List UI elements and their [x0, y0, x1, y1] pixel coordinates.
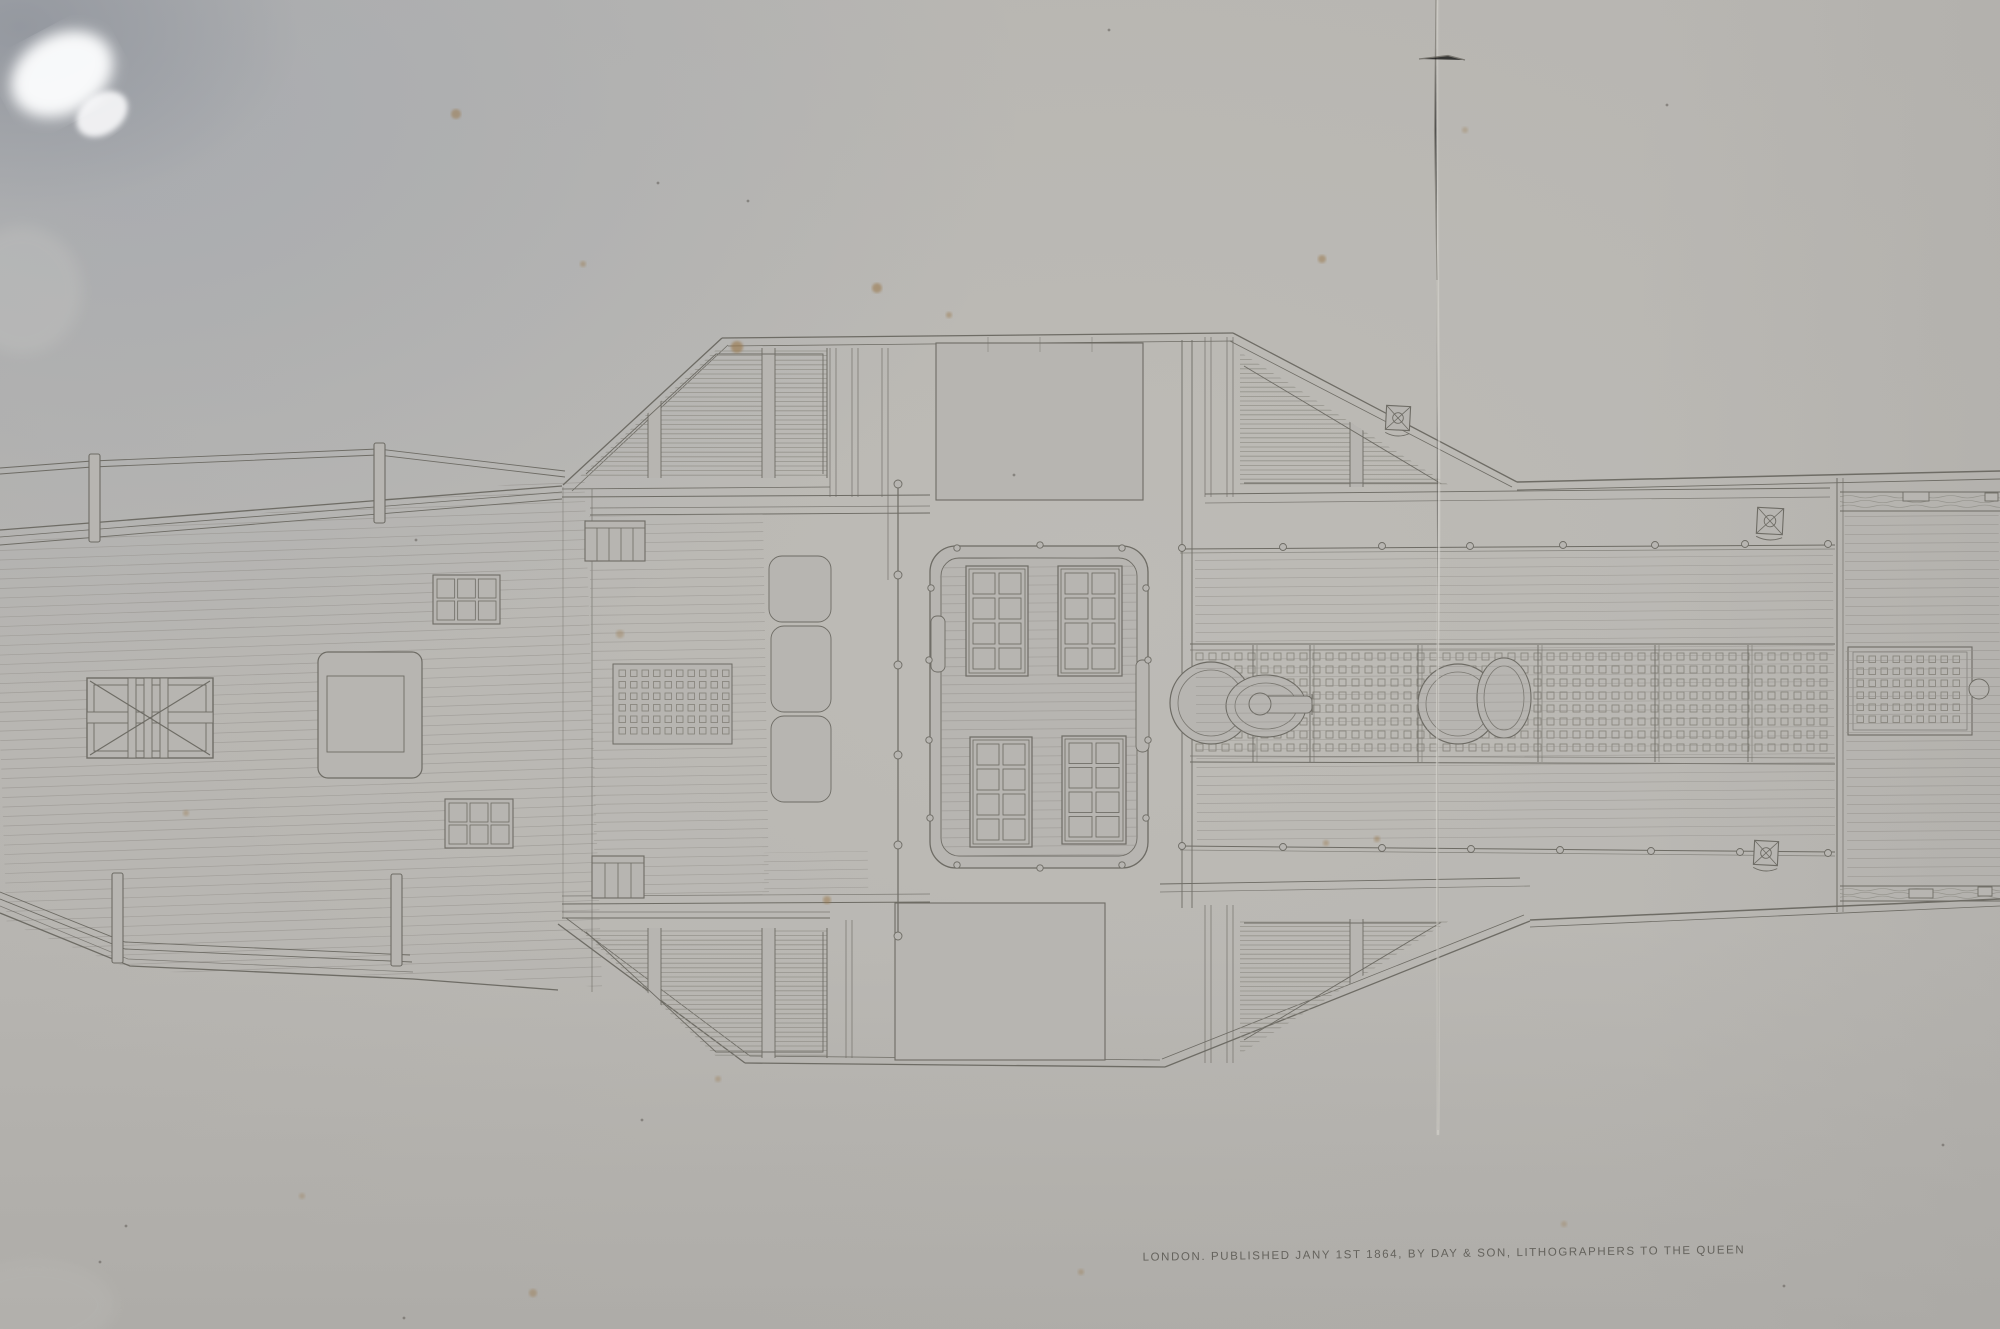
- deckhouse-roof: [318, 652, 422, 778]
- skylight-frame: [445, 799, 513, 848]
- enclosure-stanchion-ball: [1145, 657, 1151, 663]
- railing-stanchion-ball: [1557, 847, 1564, 854]
- enclosure-stanchion-ball: [927, 815, 933, 821]
- small-skylight-bottom: [445, 799, 513, 848]
- deck-locker-cover: [771, 626, 831, 712]
- dust-speck: [1013, 474, 1016, 477]
- bulwark-cleat: [1978, 887, 1992, 896]
- photo-of-lithograph: LONDON. PUBLISHED JANY 1ST 1864, BY DAY …: [0, 0, 2000, 1329]
- enclosure-stanchion-ball: [1119, 545, 1125, 551]
- foxing-spot: [946, 312, 952, 318]
- dust-speck: [1942, 1144, 1945, 1147]
- railing-stanchion-ball: [894, 841, 902, 849]
- dust-speck: [99, 1261, 102, 1264]
- enclosure-stanchion-ball: [1037, 542, 1043, 548]
- dust-speck: [641, 1119, 644, 1122]
- window-grid-frame: [966, 566, 1028, 676]
- railing-stanchion-ball: [894, 661, 902, 669]
- dust-speck: [415, 539, 418, 542]
- foxing-spot: [731, 341, 743, 353]
- foxing-spot: [1462, 127, 1468, 133]
- foxing-spot: [529, 1289, 537, 1297]
- midship-grating: [613, 664, 732, 744]
- dust-speck: [1783, 1285, 1786, 1288]
- railing-post: [391, 874, 402, 966]
- enclosure-stanchion-ball: [928, 585, 934, 591]
- dust-speck: [657, 182, 660, 185]
- louvre-mullion: [762, 922, 775, 1064]
- railing-stanchion-ball: [894, 571, 902, 579]
- railing-stanchion-ball: [1179, 843, 1186, 850]
- foxing-spot: [1318, 255, 1326, 263]
- railing-stanchion-ball: [1280, 544, 1287, 551]
- railing-post: [374, 443, 385, 523]
- enclosure-stanchion-ball: [1037, 865, 1043, 871]
- louvre-mullion: [762, 342, 775, 484]
- enclosure-stanchion-ball: [1143, 815, 1149, 821]
- enclosure-stanchion-ball: [954, 862, 960, 868]
- window-grid-bottom-right: [1062, 736, 1126, 844]
- foxing-spot: [183, 810, 189, 816]
- railing-stanchion-ball: [1280, 844, 1287, 851]
- railing-post: [112, 873, 123, 963]
- winch-drum: [1477, 658, 1531, 738]
- railing-post: [89, 454, 100, 542]
- window-grid-top-left: [966, 566, 1028, 676]
- foxing-spot: [1323, 840, 1329, 846]
- enclosure-stanchion-ball: [926, 657, 932, 663]
- railing-stanchion-ball: [1379, 845, 1386, 852]
- railing-stanchion-ball: [1652, 542, 1659, 549]
- bulwark-cleat: [1903, 492, 1929, 501]
- stairs-frame: [585, 521, 645, 561]
- window-grid-bottom-left: [970, 737, 1032, 847]
- deck-locker-cover: [769, 556, 831, 622]
- railing-stanchion-ball: [1737, 849, 1744, 856]
- foxing-spot: [580, 261, 586, 267]
- x-braced-skylight-hatch: [87, 678, 213, 758]
- foxing-spot: [616, 630, 624, 638]
- foxing-spot: [299, 1193, 305, 1199]
- enclosure-stanchion-ball: [1119, 862, 1125, 868]
- foxing-spot: [823, 896, 831, 904]
- foxing-spot: [715, 1076, 721, 1082]
- companion-stairs-bottom: [592, 856, 644, 898]
- dust-speck: [403, 1317, 406, 1320]
- railing-stanchion-ball: [1379, 543, 1386, 550]
- ship-deck-plan-scene: LONDON. PUBLISHED JANY 1ST 1864, BY DAY …: [0, 0, 2000, 1329]
- dust-speck: [1108, 29, 1111, 32]
- railing-stanchion-ball: [1742, 541, 1749, 548]
- mooring-ring: [1969, 679, 1989, 699]
- railing-stanchion-ball: [1467, 543, 1474, 550]
- railing-stanchion-ball: [894, 751, 902, 759]
- deckhouse-outer: [318, 652, 422, 778]
- railing-stanchion-ball: [1825, 850, 1832, 857]
- enclosure-stanchion-ball: [1143, 585, 1149, 591]
- small-skylight-top: [433, 575, 500, 624]
- railing-stanchion-ball: [1179, 545, 1186, 552]
- railing-stanchion-ball: [894, 932, 902, 940]
- window-grid-frame: [970, 737, 1032, 847]
- railing-stanchion-ball: [1825, 541, 1832, 548]
- skylight-frame: [433, 575, 500, 624]
- hatch-vertical-bar: [128, 678, 136, 758]
- dust-speck: [1666, 104, 1669, 107]
- window-grid-top-right: [1058, 566, 1122, 676]
- enclosure-stanchion-ball: [926, 737, 932, 743]
- railing-stanchion-ball: [1648, 848, 1655, 855]
- companion-stairs-top: [585, 521, 645, 561]
- engine-skylight-bottom: [895, 903, 1105, 1060]
- foxing-spot: [1561, 1221, 1567, 1227]
- dust-speck: [125, 1225, 128, 1228]
- railing-stanchion-ball: [894, 480, 902, 488]
- window-grid-frame: [1058, 566, 1122, 676]
- deck-locker-cover: [771, 716, 831, 802]
- bulwark-cleat: [1985, 493, 1998, 501]
- engine-skylight-top: [936, 343, 1143, 500]
- foxing-spot: [1374, 836, 1380, 842]
- enclosure-stanchion-ball: [954, 545, 960, 551]
- foxing-spot: [872, 283, 882, 293]
- railing-stanchion-ball: [1560, 542, 1567, 549]
- foxing-spot: [451, 109, 461, 119]
- foxing-spot: [1078, 1269, 1084, 1275]
- enclosure-stanchion-ball: [1145, 737, 1151, 743]
- window-grid-frame: [1062, 736, 1126, 844]
- bulwark-cleat: [1909, 889, 1933, 898]
- railing-stanchion-ball: [1468, 846, 1475, 853]
- hatch-vertical-bar: [160, 678, 168, 758]
- enclosure-side-tab: [931, 616, 945, 672]
- dust-speck: [747, 200, 750, 203]
